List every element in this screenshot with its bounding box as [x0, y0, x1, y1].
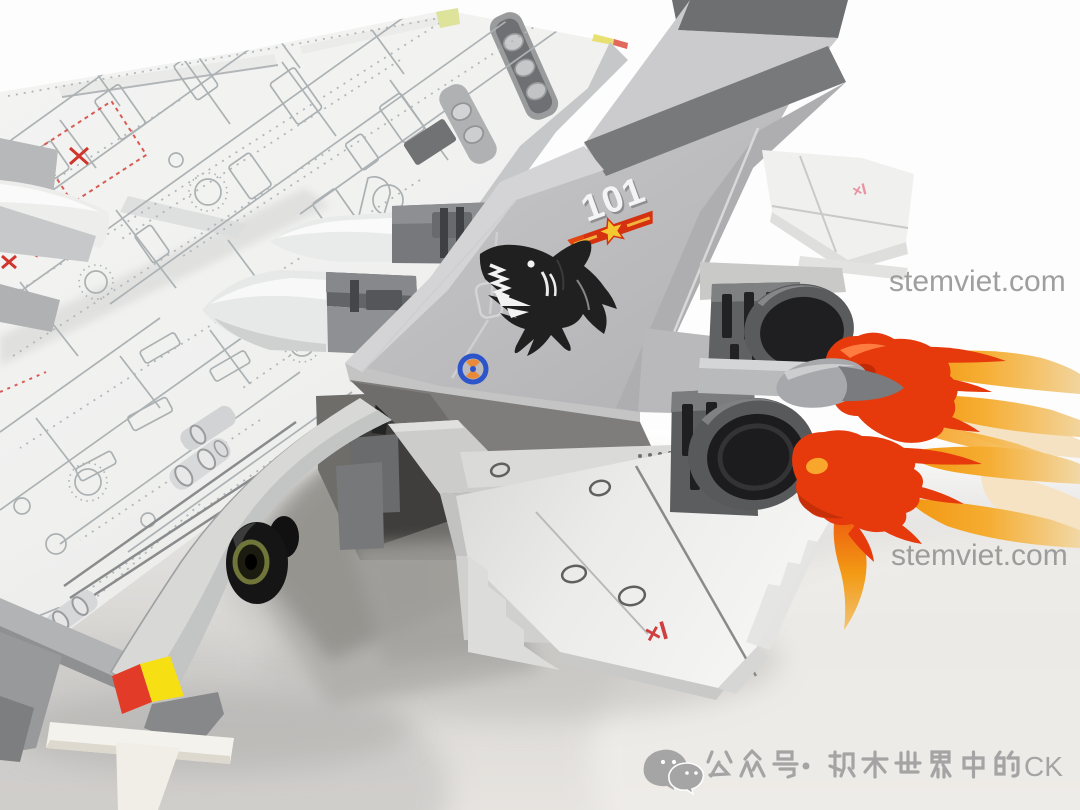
svg-text:stemviet.com: stemviet.com [889, 265, 1066, 298]
svg-text:CK: CK [1024, 751, 1063, 782]
svg-text:stemviet.com: stemviet.com [891, 539, 1068, 572]
